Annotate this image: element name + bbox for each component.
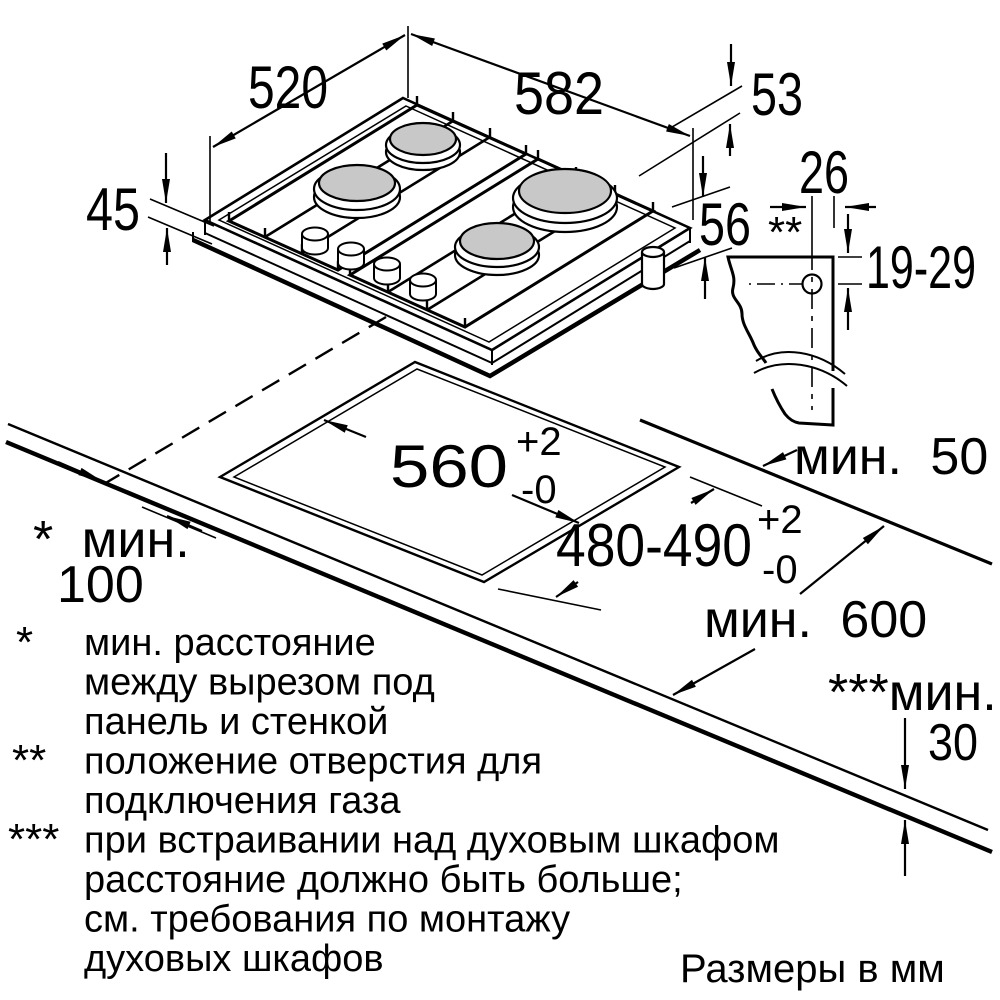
dim-560-arrow-left [324,420,366,437]
dim-label-53: 53 [751,61,803,128]
dim-label-520: 520 [248,54,328,121]
dim-480-arrow-down [556,582,578,597]
arrow-min600-front [673,649,755,695]
installation-diagram-page: 520 582 53 56 45 26 ** 19-29 [0,0,1000,1000]
dim-label-582: 582 [514,60,604,127]
dim-label-560: 560 [390,433,508,500]
label-min30-value: 30 [928,714,978,772]
profile-outline-upper [728,257,833,371]
dim-480-arrow-up [691,489,714,503]
label-min600: мин. 600 [704,591,927,649]
dim-480-tol-plus: +2 [757,498,803,542]
wall-dashed-line [104,317,386,484]
ref-lines-53 [639,86,742,176]
burner-front [455,223,539,275]
cutout-front-extension-line [498,589,601,610]
cutout-right-extension-line [690,477,762,506]
dim-label-19-29: 19-29 [866,234,976,301]
footnote-1-line-1: мин. расстояние [84,622,376,664]
footnote-2-line-2: подключения газа [84,780,401,822]
dim-560-tol-plus: +2 [516,420,562,464]
ticks-19-29 [838,257,862,284]
burner-left [314,165,400,218]
dim-480-tol-minus: -0 [762,548,798,592]
dim-label-56: 56 [699,191,751,258]
dim-label-45: 45 [86,176,140,243]
burner-back [386,123,460,170]
footnote-3-line-4: духовых шкафов [84,938,384,980]
footnote-1-line-2: между вырезом под [84,662,435,704]
gas-connection-detail: 26 ** 19-29 [728,139,976,425]
hob-installation-diagram: 520 582 53 56 45 26 ** 19-29 [0,0,1000,1000]
hob-drawing [193,96,700,376]
footnote-3-line-3: см. требования по монтажу [84,899,570,941]
dim-560-tol-minus: -0 [521,468,557,512]
burner-right [513,169,617,232]
label-min50: мин. 50 [794,428,988,486]
units-note: Размеры в мм [680,947,945,991]
footnote-1-line-3: панель и стенкой [84,701,388,743]
footnote-2-marker: ** [12,736,46,785]
dim-label-26: 26 [799,139,849,206]
label-min100-value: 100 [57,556,144,614]
arrow-min600-back [800,526,884,594]
profile-outline-lower [772,388,833,425]
arrow-min50 [763,450,797,466]
gas-hole-marker: ** [768,208,802,257]
footnote-3-line-1: при встраивании над духовым шкафом [84,820,780,862]
footnotes-block: * мин. расстояние между вырезом под пане… [8,618,945,991]
ref-lines-45 [148,199,214,244]
footnote-2-line-1: положение отверстия для [84,741,542,783]
hob-foot [642,247,664,289]
dim-label-480-490: 480-490 [556,512,752,579]
footnote-3-marker: *** [8,815,59,864]
footnote-1-marker: * [16,618,33,667]
footnote-3-line-2: расстояние должно быть больше; [84,859,683,901]
arrow-min100-left [58,462,102,481]
